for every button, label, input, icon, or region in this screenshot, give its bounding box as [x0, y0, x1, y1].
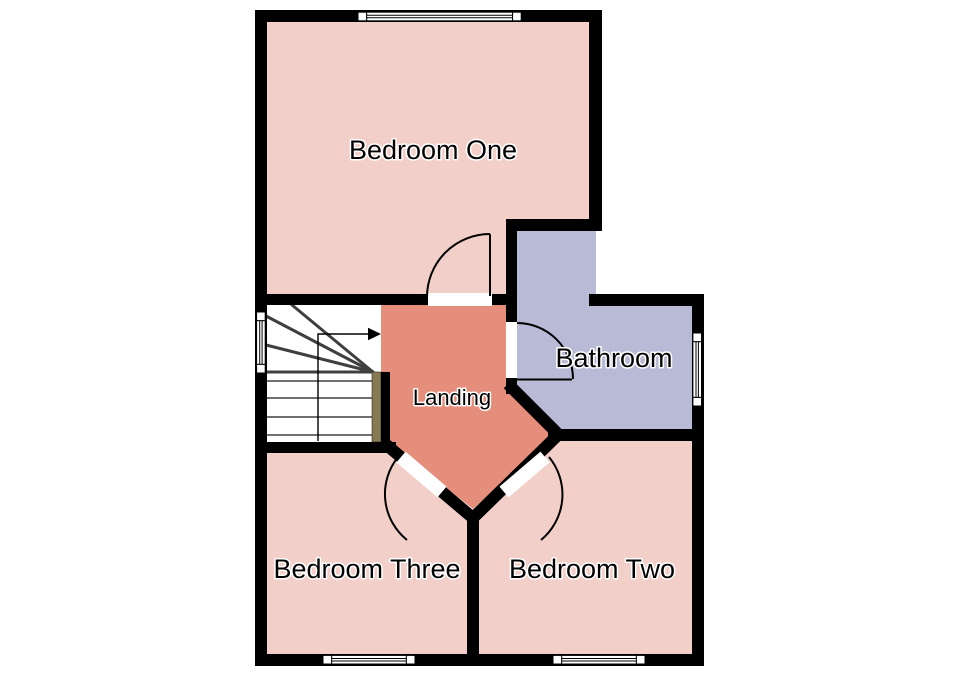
label-landing: Landing: [413, 385, 491, 410]
wall-bathroom-extension-top: [589, 294, 704, 306]
stair-banister: [372, 372, 381, 442]
label-bedroom-three: Bedroom Three: [273, 554, 460, 584]
wall-stairs-bottom: [255, 442, 396, 453]
wall-bedroom-one-right: [589, 10, 602, 231]
window-bedroom-three-bottom: [323, 655, 415, 664]
window-bedroom-one-top: [358, 12, 521, 21]
wall-bathroom-bottom: [548, 429, 704, 441]
floorplan-svg: Bedroom One Bathroom Landing Bedroom Thr…: [0, 0, 960, 679]
window-stairs-left: [257, 312, 266, 373]
wall-bedroom-divider: [467, 512, 479, 666]
wall-bathroom-top: [506, 219, 602, 231]
opening-bedroom-one-door: [428, 293, 492, 306]
opening-bathroom-door: [506, 322, 517, 378]
window-bathroom-right: [693, 333, 702, 406]
floorplan-canvas: Bedroom One Bathroom Landing Bedroom Thr…: [0, 0, 960, 679]
label-bedroom-one: Bedroom One: [349, 135, 517, 165]
label-bedroom-two: Bedroom Two: [509, 554, 675, 584]
label-bathroom: Bathroom: [555, 343, 672, 373]
window-bedroom-two-bottom: [553, 655, 645, 664]
